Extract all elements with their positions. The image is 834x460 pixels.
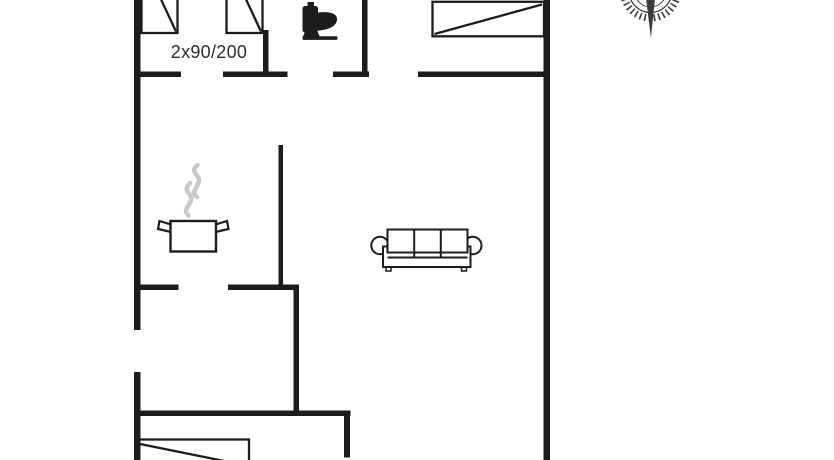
compass-rose-icon	[624, 0, 678, 38]
bed-fold-line	[140, 444, 234, 460]
wall-top-seg4	[418, 72, 548, 78]
wall-kitchen-bottom-seg2	[228, 285, 299, 291]
bed-icon	[139, 440, 250, 460]
steam-line	[194, 165, 199, 197]
sofa-icon	[371, 230, 481, 272]
bed-size-label: 2x90/200	[150, 42, 268, 62]
bed-topright	[433, 2, 545, 37]
wall-toilet-right	[362, 0, 368, 77]
wall-top-seg1	[137, 72, 181, 78]
pot-body	[171, 221, 217, 252]
stove-pot-icon	[158, 165, 229, 252]
toilet-bowl	[315, 12, 337, 30]
wall-top-seg2	[223, 72, 288, 78]
wall-kitchen-bottom-seg1	[137, 285, 179, 291]
wall-kitchen-divider	[279, 145, 284, 287]
pot-handle-left	[158, 221, 171, 232]
toilet-pedestal	[303, 32, 320, 38]
bed-fold-line	[435, 5, 543, 35]
double-bed-topleft	[142, 0, 263, 33]
bed-icon	[227, 0, 263, 33]
pot-handle-right	[216, 221, 229, 232]
wall-lower-stub	[344, 416, 350, 458]
bed-bottomleft	[139, 440, 250, 460]
toilet-icon	[303, 2, 338, 40]
wall-right	[544, 0, 551, 460]
bed-icon	[142, 0, 178, 33]
steam-line	[186, 183, 191, 216]
floorplan-drawing	[0, 0, 834, 460]
floorplan-canvas: 2x90/200	[0, 0, 834, 460]
toilet-base	[303, 36, 338, 40]
wall-left-upper	[134, 0, 141, 330]
bed-fold-line	[244, 0, 262, 32]
bed-fold-line	[159, 0, 177, 32]
wall-lower-horizontal	[137, 411, 351, 417]
wall-hallway-vertical	[294, 288, 300, 412]
sofa-backrest	[388, 230, 468, 253]
